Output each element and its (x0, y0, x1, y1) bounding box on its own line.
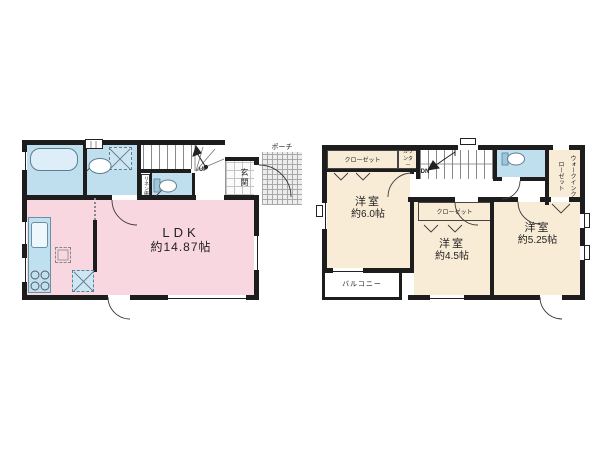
bedroom3-room (494, 202, 580, 295)
bedroom3-area: 約5.25帖 (495, 235, 580, 247)
window-washroom-top (85, 139, 103, 149)
ldk-terrace-door-arc (108, 297, 130, 319)
bedroom3-label: 洋室 約5.25帖 (495, 222, 580, 246)
bedroom2-label: 洋室 約4.5帖 (414, 238, 490, 262)
ldk-terrace-door-gap (108, 295, 130, 300)
window-kitchen-left-1 (22, 222, 27, 244)
washing-machine (109, 147, 132, 170)
ldk-area: 約14.87帖 (135, 241, 227, 255)
floor1-plan: リネン庫 玄関 LDK 約14.87帖 UP (22, 140, 259, 300)
closet-mid: クローゼット (418, 202, 491, 221)
toilet-room-1f (152, 173, 192, 197)
stairs-up-label: UP (196, 167, 210, 174)
counter-box: カウンター (398, 150, 418, 169)
balcony-slider-window (333, 268, 363, 273)
porch-label: ポーチ (260, 144, 304, 152)
bedroom3-exterior-door-arc (540, 297, 562, 319)
bedroom3-name: 洋室 (495, 222, 580, 235)
window-bedroom3-right-bump-2 (584, 245, 590, 260)
window-bedroom3-right-bump-1 (584, 213, 590, 228)
kitchen-sink (31, 222, 48, 248)
bedroom3-door-gap (518, 197, 540, 202)
balcony-label: バルコニー (332, 281, 392, 289)
genkan-label: 玄関 (231, 164, 249, 192)
closet-mid-label: クローゼット (436, 207, 472, 216)
window-bedroom2-bottom (430, 295, 464, 300)
window-wic-top (553, 145, 569, 150)
balcony-wall-left (322, 273, 325, 299)
wall-kitchen-nook (93, 220, 97, 272)
window-ldk-bottom (168, 295, 246, 300)
wall-linen-toilet (150, 173, 152, 197)
wall-stairs-toilet (493, 150, 497, 177)
floor-storage (72, 270, 94, 292)
porch-tile (262, 152, 302, 205)
window-bedroom1-left-bump (316, 205, 323, 217)
bedroom3-exterior-door-gap (540, 295, 562, 300)
bathtub (30, 148, 78, 171)
stairs-down-label: DN (418, 169, 432, 176)
balcony-wall-front (322, 297, 402, 300)
ldk-name: LDK (135, 226, 227, 241)
window-ldk-right (254, 236, 259, 270)
wall-bedroom2-3 (490, 202, 494, 295)
window-stairs-top (458, 145, 478, 150)
wall-bedroom1-stub (410, 169, 414, 174)
bedroom2-name: 洋室 (414, 238, 490, 251)
linen-closet: リネン庫 (141, 174, 150, 197)
entrance-notch (225, 138, 259, 157)
bedroom1-area: 約6.0帖 (330, 209, 406, 221)
bedroom1-label: 洋室 約6.0帖 (330, 196, 406, 220)
wic-label: ウォークインクローゼット (552, 153, 578, 199)
counter-label: カウンター (401, 149, 415, 170)
ldk-label: LDK 約14.87帖 (135, 226, 227, 255)
stairs-up (143, 145, 195, 169)
bedroom2-door-gap (455, 197, 478, 202)
wall-toilet-hall (192, 173, 195, 197)
balcony-wall-right (399, 273, 402, 300)
toilet2-door-gap (502, 177, 520, 181)
toilet-room-2f (497, 150, 545, 177)
window-bath-left (22, 152, 27, 170)
floor2-plan: クローゼット カウンター クローゼット バルコニー ウォーク (322, 144, 585, 300)
kitchen-open-boundary (94, 198, 96, 220)
linen-closet-label: リネン庫 (142, 175, 149, 196)
closet-top-label: クローゼット (344, 155, 380, 164)
bedroom1-name: 洋室 (330, 196, 406, 209)
refrigerator-space (55, 247, 71, 263)
floorplan-canvas: リネン庫 玄関 LDK 約14.87帖 UP ポーチ (0, 0, 600, 449)
entrance-door-gap (254, 165, 259, 195)
closet-top: クローゼット (327, 150, 398, 169)
wall-genkan-top (225, 157, 259, 161)
bedroom2-area: 約4.5帖 (414, 251, 490, 263)
window-kitchen-left-2 (22, 258, 27, 282)
wall-under-closets (327, 169, 418, 172)
window-stairs-top-bump (460, 138, 476, 145)
